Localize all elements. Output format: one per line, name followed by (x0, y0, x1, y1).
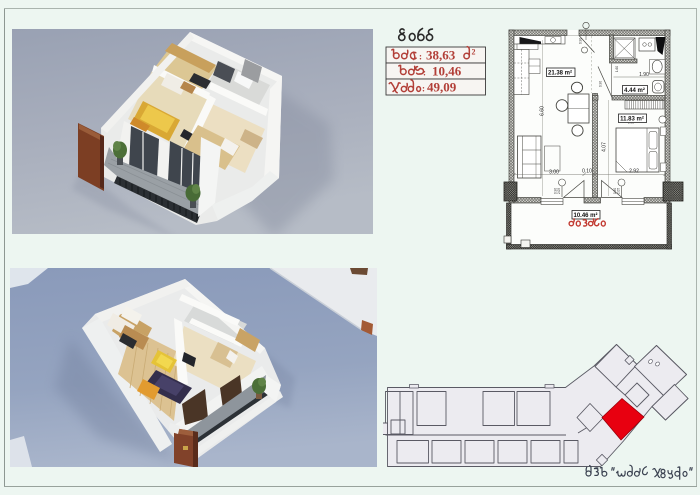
svg-text:10.46 m²: 10.46 m² (573, 212, 597, 219)
svg-text:10,46: 10,46 (432, 64, 462, 79)
svg-text:2: 2 (472, 48, 476, 57)
svg-text:1.90: 1.90 (639, 72, 649, 78)
svg-text:0.10: 0.10 (582, 168, 592, 174)
svg-text::: : (422, 84, 425, 94)
svg-text:0.90: 0.90 (599, 81, 603, 87)
svg-text:2.05: 2.05 (617, 188, 621, 194)
svg-text:49,09: 49,09 (427, 80, 457, 95)
svg-text:4.07: 4.07 (602, 142, 608, 152)
svg-text::: : (423, 68, 426, 78)
svg-text:1.60: 1.60 (615, 66, 619, 72)
svg-text:2.05: 2.05 (557, 188, 561, 194)
svg-text:3.00: 3.00 (549, 169, 559, 175)
svg-text:38,63: 38,63 (426, 48, 456, 63)
svg-text:6.60: 6.60 (540, 106, 546, 116)
svg-text:2.92: 2.92 (629, 168, 639, 174)
svg-text::: : (419, 52, 422, 62)
svg-text:21.38 m²: 21.38 m² (548, 70, 572, 77)
svg-text:4.44 m²: 4.44 m² (624, 87, 645, 94)
svg-text:0.90: 0.90 (579, 38, 583, 44)
svg-text:11.83 m²: 11.83 m² (620, 116, 644, 123)
